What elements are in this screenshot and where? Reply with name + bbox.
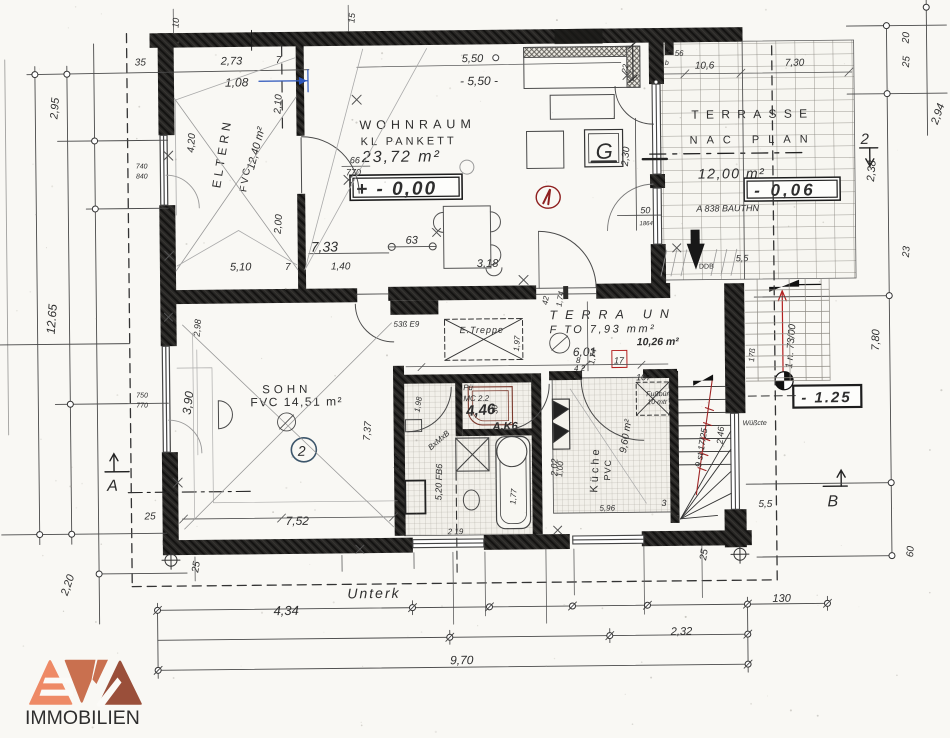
svg-text:E.Treppe: E.Treppe [460, 325, 504, 335]
svg-text:Fußbür,: Fußbür, [646, 391, 670, 398]
svg-text:107: 107 [636, 372, 652, 382]
svg-text:23: 23 [901, 245, 913, 258]
svg-text:PVC: PVC [602, 459, 613, 481]
svg-text:25: 25 [143, 511, 156, 522]
svg-text:10: 10 [170, 17, 181, 28]
svg-text:1,82: 1,82 [392, 454, 402, 471]
svg-text:7,80: 7,80 [870, 328, 883, 351]
svg-text:2,10: 2,10 [272, 94, 285, 116]
svg-text:5,96: 5,96 [599, 504, 615, 513]
svg-text:2: 2 [297, 443, 306, 459]
svg-text:A 838 BAUTHN: A 838 BAUTHN [695, 203, 759, 214]
svg-text:4 2: 4 2 [574, 364, 586, 373]
svg-text:25: 25 [698, 548, 711, 562]
svg-text:2: 2 [860, 131, 870, 148]
svg-text:2,95: 2,95 [48, 96, 62, 120]
svg-text:G: G [596, 139, 613, 164]
svg-text:Unterk: Unterk [347, 585, 400, 602]
svg-text:7,30: 7,30 [785, 58, 805, 69]
svg-text:5,5: 5,5 [736, 253, 750, 263]
svg-text:IMMOBILIEN: IMMOBILIEN [25, 707, 140, 729]
svg-text:1,40: 1,40 [331, 261, 351, 272]
svg-text:2,00: 2,00 [273, 214, 286, 236]
svg-text:9,70: 9,70 [450, 653, 474, 667]
svg-text:50: 50 [640, 205, 650, 215]
svg-text:B: B [827, 493, 838, 510]
svg-text:5,10: 5,10 [230, 261, 252, 273]
svg-text:F TO 7,93 mm²: F TO 7,93 mm² [550, 323, 657, 336]
svg-text:56: 56 [675, 49, 685, 58]
svg-text:63: 63 [406, 235, 419, 247]
svg-text:FVC 14,51 m²: FVC 14,51 m² [250, 394, 343, 409]
svg-text:b: b [665, 60, 669, 67]
svg-text:840: 840 [136, 173, 148, 180]
svg-text:7: 7 [285, 262, 291, 273]
svg-text:- 5,50 -: - 5,50 - [460, 74, 498, 88]
svg-text:A: A [106, 478, 118, 495]
svg-text:- 1.25: - 1.25 [801, 389, 852, 407]
svg-text:20: 20 [901, 31, 913, 44]
svg-text:1864: 1864 [639, 221, 653, 227]
svg-text:53ß E9: 53ß E9 [393, 320, 419, 329]
svg-text:130: 130 [772, 593, 791, 605]
svg-text:2,73: 2,73 [220, 55, 243, 67]
svg-text:1,97: 1,97 [512, 335, 522, 352]
svg-text:+ - 0,00: + - 0,00 [356, 178, 437, 200]
svg-text:Küche: Küche [588, 446, 602, 493]
svg-text:12.65: 12.65 [44, 303, 60, 334]
svg-text:25: 25 [190, 560, 203, 574]
svg-text:- 0,06: - 0,06 [754, 180, 816, 200]
svg-text:23,72 m²: 23,72 m² [361, 148, 441, 166]
svg-text:10 mtr: 10 mtr [647, 399, 668, 406]
svg-text:5,50: 5,50 [462, 53, 484, 65]
svg-text:36: 36 [490, 404, 499, 414]
svg-text:Wüßcte: Wüßcte [743, 420, 767, 427]
svg-text:Pü: Pü [463, 383, 473, 392]
svg-text:2,38: 2,38 [865, 159, 879, 183]
svg-text:770: 770 [136, 402, 148, 409]
svg-text:5,20 FB6: 5,20 FB6 [433, 464, 444, 501]
svg-text:3,18: 3,18 [477, 258, 499, 270]
svg-text:35: 35 [135, 57, 147, 68]
svg-text:60: 60 [905, 545, 917, 557]
svg-text:1,77: 1,77 [508, 488, 518, 505]
svg-text:2 19: 2 19 [447, 527, 464, 536]
svg-text:17: 17 [614, 355, 625, 365]
svg-text:A.K6: A.K6 [492, 421, 519, 433]
svg-text:7,37: 7,37 [362, 421, 374, 442]
svg-text:2,30: 2,30 [620, 146, 633, 168]
svg-text:15: 15 [346, 12, 357, 24]
svg-text:WOHNRAUM: WOHNRAUM [359, 117, 476, 132]
svg-text:TERRA UN: TERRA UN [549, 307, 677, 322]
svg-text:2,32: 2,32 [670, 626, 693, 638]
svg-text:TERRASSE: TERRASSE [691, 106, 814, 121]
svg-text:750: 750 [136, 392, 148, 399]
svg-text:25: 25 [901, 55, 913, 68]
svg-text:740: 740 [136, 163, 148, 170]
svg-text:3: 3 [661, 498, 666, 508]
svg-text:17ß: 17ß [747, 348, 757, 363]
svg-text:10,26 m²: 10,26 m² [637, 336, 680, 348]
svg-text:22: 22 [620, 63, 631, 75]
svg-text:NAC PLAN: NAC PLAN [690, 133, 817, 146]
svg-text:4,34: 4,34 [273, 603, 298, 618]
svg-text:DDB: DDB [699, 263, 714, 270]
svg-text:4,20: 4,20 [186, 132, 198, 153]
svg-text:1,08: 1,08 [225, 75, 249, 89]
svg-text:2,46: 2,46 [715, 426, 726, 445]
svg-text:5,5: 5,5 [758, 499, 772, 510]
svg-text:1,00: 1,00 [555, 460, 565, 477]
svg-text:10,6: 10,6 [695, 60, 715, 71]
